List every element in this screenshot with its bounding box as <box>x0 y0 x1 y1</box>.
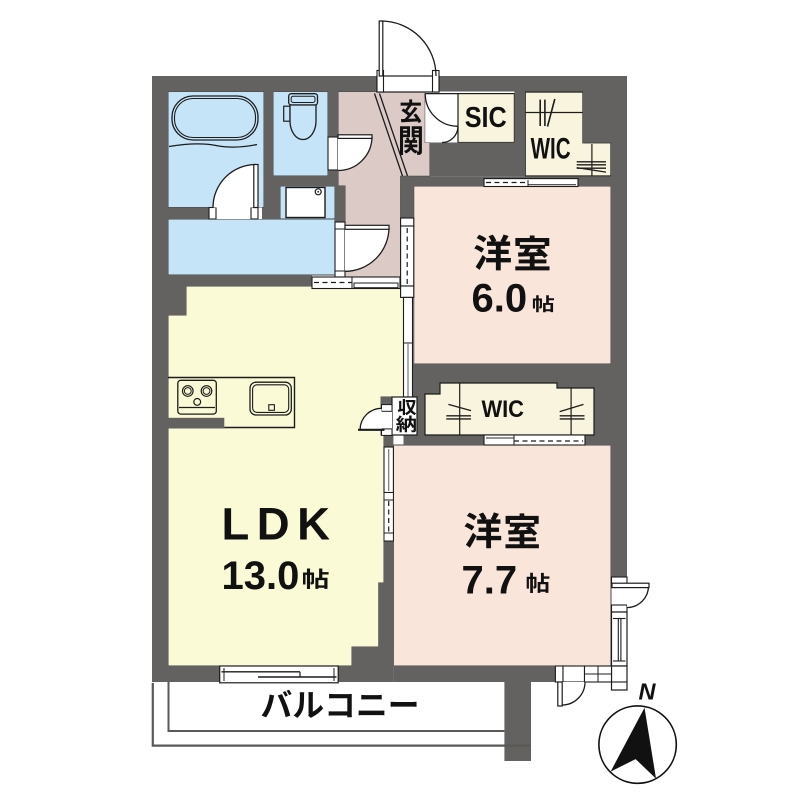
svg-text:SIC: SIC <box>465 102 507 134</box>
svg-text:N: N <box>639 679 657 705</box>
svg-text:WIC: WIC <box>531 133 571 166</box>
svg-text:6.0: 6.0 <box>472 277 528 321</box>
svg-text:13.0: 13.0 <box>222 554 300 598</box>
svg-text:7.7: 7.7 <box>462 559 518 603</box>
svg-text:WIC: WIC <box>481 396 524 423</box>
svg-text:LDK: LDK <box>221 499 337 550</box>
